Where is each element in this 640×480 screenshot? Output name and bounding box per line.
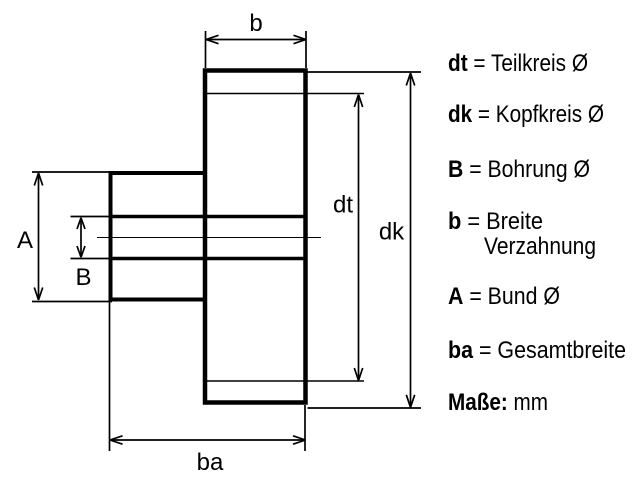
svg-text:B = Bohrung Ø: B = Bohrung Ø xyxy=(448,156,590,183)
svg-text:dt: dt xyxy=(333,192,353,219)
svg-text:ba = Gesamtbreite: ba = Gesamtbreite xyxy=(448,337,626,364)
svg-text:dk = Kopfkreis Ø: dk = Kopfkreis Ø xyxy=(448,101,604,128)
svg-text:dt = Teilkreis Ø: dt = Teilkreis Ø xyxy=(448,50,588,77)
svg-text:dk: dk xyxy=(379,219,405,246)
svg-text:b: b xyxy=(249,10,262,37)
svg-text:B: B xyxy=(75,264,91,291)
svg-text:A: A xyxy=(17,227,33,254)
svg-text:Verzahnung: Verzahnung xyxy=(484,233,596,260)
svg-text:Maße: mm: Maße: mm xyxy=(448,389,548,416)
svg-text:ba: ba xyxy=(197,449,224,476)
svg-text:b = Breite: b = Breite xyxy=(448,208,543,235)
svg-text:A = Bund Ø: A = Bund Ø xyxy=(448,283,560,310)
